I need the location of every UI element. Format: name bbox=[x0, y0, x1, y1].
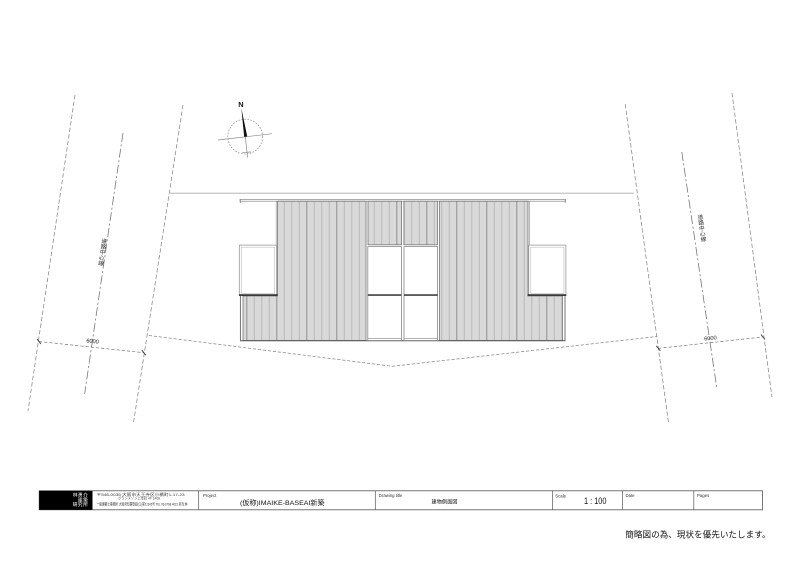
svg-text:道路中心線: 道路中心線 bbox=[697, 213, 707, 244]
svg-text:グランメゾン上本町 4F 1408: グランメゾン上本町 4F 1408 bbox=[118, 496, 160, 501]
svg-text:1 : 100: 1 : 100 bbox=[584, 496, 607, 506]
svg-text:道路中心線: 道路中心線 bbox=[98, 237, 108, 268]
svg-text:6000: 6000 bbox=[86, 338, 99, 345]
svg-text:Scale: Scale bbox=[555, 494, 566, 499]
svg-text:Project: Project bbox=[203, 493, 217, 498]
svg-text:Drawing title: Drawing title bbox=[379, 493, 403, 498]
svg-text:簡略図の為、現状を優先いたします。: 簡略図の為、現状を優先いたします。 bbox=[625, 529, 770, 540]
svg-text:一級建築士事務所 大阪府知事登録(ロ)第12345号 TEL: 一級建築士事務所 大阪府知事登録(ロ)第12345号 TEL 06-6768-4… bbox=[97, 501, 188, 506]
svg-text:建物側面図: 建物側面図 bbox=[432, 498, 458, 506]
svg-text:6000: 6000 bbox=[704, 335, 717, 342]
svg-text:Date: Date bbox=[626, 493, 636, 498]
svg-text:研究所: 研究所 bbox=[73, 501, 89, 508]
svg-text:(仮称)IMAIKE-BASEAI新築: (仮称)IMAIKE-BASEAI新築 bbox=[240, 498, 325, 507]
svg-text:N: N bbox=[238, 100, 243, 109]
svg-text:Pages: Pages bbox=[697, 493, 709, 498]
